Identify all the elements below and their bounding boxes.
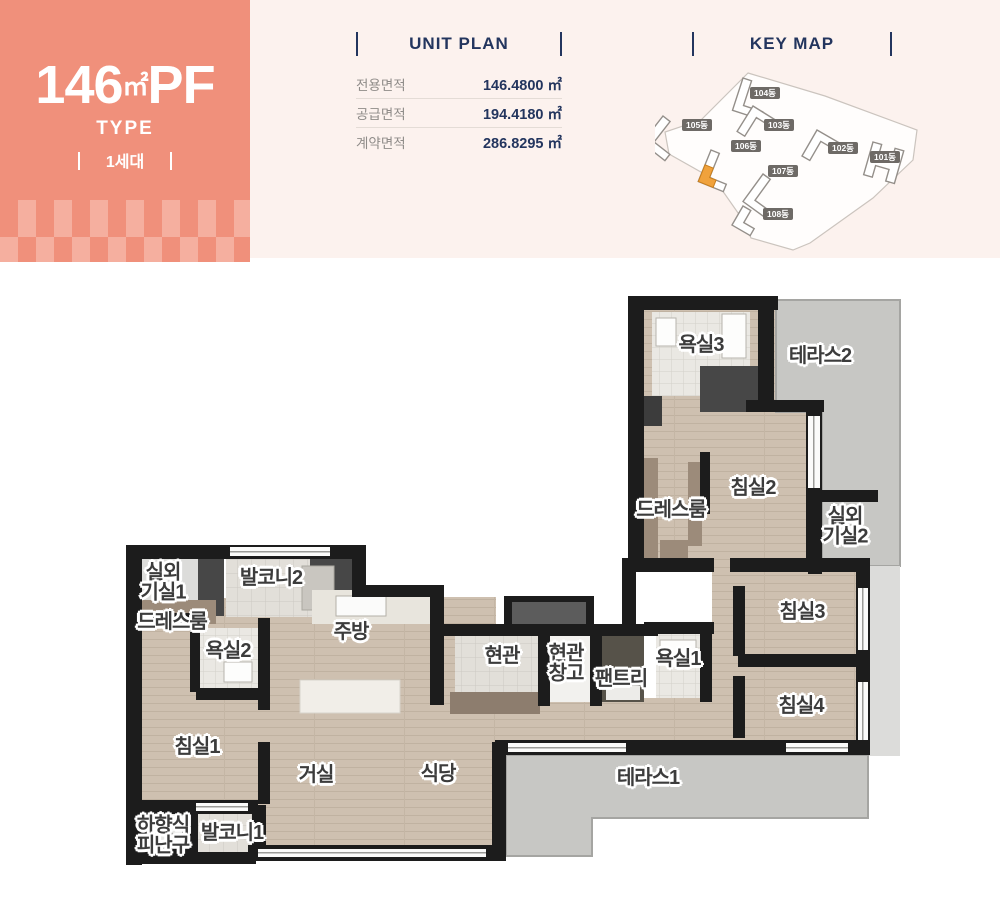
room-label-bedroom4: 침실4: [779, 696, 824, 716]
room-label-balcony1: 발코니1: [201, 823, 263, 843]
room-label-terrace1: 테라스1: [617, 768, 679, 788]
side-strip: [868, 566, 900, 756]
room-label-entry-storage: 현관 창고: [549, 644, 584, 685]
terrace1-floor: [506, 755, 868, 856]
room-label-entry: 현관: [485, 646, 520, 666]
room-label-kitchen: 주방: [334, 622, 369, 642]
room-label-pantry: 팬트리: [595, 669, 647, 689]
room-label-escape-hatch: 하향식 피난구: [137, 816, 189, 857]
room-label-bath1: 욕실1: [656, 649, 701, 669]
room-label-living: 거실: [299, 765, 334, 785]
floor-plan: [0, 0, 1000, 904]
room-label-dressroom-upper: 드레스룸: [636, 500, 706, 520]
room-label-bedroom1: 침실1: [175, 737, 220, 757]
room-label-bath3: 욕실3: [679, 335, 724, 355]
room-label-bath2: 욕실2: [206, 641, 251, 661]
floor-plan-page: 146㎡PF TYPE 1세대 UNIT PLAN 전용면적 146.4800 …: [0, 0, 1000, 904]
room-label-terrace2: 테라스2: [789, 346, 851, 366]
room-label-dressroom-lower: 드레스룸: [137, 612, 207, 632]
room-label-bedroom3: 침실3: [780, 602, 825, 622]
room-label-dining: 식당: [421, 764, 456, 784]
room-label-ac-room2: 실외 기실2: [823, 507, 868, 548]
room-label-bedroom2: 침실2: [731, 478, 776, 498]
room-label-ac-room1: 실외 기실1: [141, 563, 186, 604]
room-label-balcony2: 발코니2: [240, 568, 302, 588]
